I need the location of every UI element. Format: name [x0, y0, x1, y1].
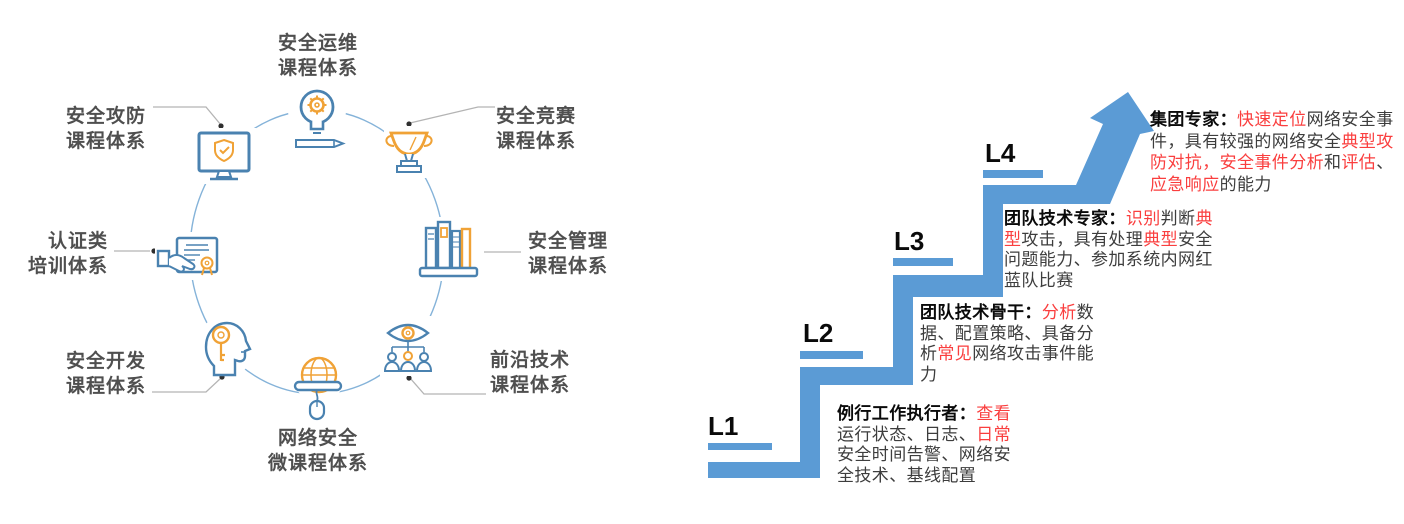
node-label-competition: 安全竞赛 课程体系 — [496, 104, 616, 154]
desc-line: 蓝队比赛 — [1004, 271, 1229, 292]
desc-line: 应急响应的能力 — [1150, 174, 1404, 196]
globe-mouse-icon — [293, 350, 345, 422]
desc-line: 问题能力、参加系统内网红 — [1004, 250, 1229, 271]
node-label-micro: 网络安全 微课程体系 — [238, 426, 398, 476]
text-segment: 识别 — [1126, 209, 1161, 228]
text-segment: 力 — [920, 365, 937, 384]
text-segment: 蓝队比赛 — [1004, 271, 1074, 290]
text-segment: 安全时间告警、网络安 — [837, 445, 1011, 464]
node-label-line: 微课程体系 — [238, 451, 398, 476]
desc-line: 析常见网络攻击事件能 — [920, 344, 1110, 365]
level-label-l4: L4 — [985, 139, 1015, 167]
connector-development — [152, 378, 221, 392]
text-segment: 网络安全事 — [1307, 110, 1394, 129]
connector-frontier — [410, 378, 486, 394]
level-desc-l4: 集团专家：快速定位网络安全事 件，具有较强的网络安全典型攻 防对抗，安全事件分析… — [1150, 109, 1404, 195]
text-segment: 分析 — [1042, 303, 1077, 322]
desc-line: 型攻击，具有处理典型安全 — [1004, 230, 1229, 251]
text-segment: 和 — [1324, 153, 1341, 172]
text-segment: 析 — [920, 344, 937, 363]
desc-line: 防对抗，安全事件分析和评估、 — [1150, 152, 1404, 174]
node-label-development: 安全开发 课程体系 — [26, 349, 146, 399]
node-label-line: 认证类 — [0, 229, 108, 254]
text-segment: 例行工作执行者： — [837, 404, 976, 423]
text-segment: 全技术、基线配置 — [837, 466, 976, 485]
text-segment: 数 — [1077, 303, 1094, 322]
level-bar-l4 — [983, 170, 1043, 178]
level-desc-l1: 例行工作执行者：查看 运行状态、日志、日常 安全时间告警、网络安 全技术、基线配… — [837, 404, 1027, 487]
text-segment: 查看 — [976, 404, 1011, 423]
desc-line: 力 — [920, 365, 1110, 386]
text-segment: 攻击，具有处理 — [1021, 230, 1143, 249]
text-segment: 判断 — [1161, 209, 1196, 228]
figure-canvas: 安全运维 课程体系 安全攻防 课程体系 安全竞赛 课程体系 认证类 培训体系 安… — [0, 0, 1404, 524]
level-label-l1: L1 — [708, 412, 738, 440]
node-label-line: 安全管理 — [528, 229, 648, 254]
text-segment: 日常 — [976, 425, 1011, 444]
text-segment: 团队技术骨干： — [920, 303, 1042, 322]
certificate-icon — [155, 232, 223, 280]
text-segment: 快速定位 — [1237, 110, 1307, 129]
level-desc-l2: 团队技术骨干：分析数 据、配置策略、具备分 析常见网络攻击事件能 力 — [920, 303, 1110, 386]
node-label-line: 安全运维 — [238, 31, 398, 56]
text-segment: 件，具有较强的网络安全 — [1150, 132, 1341, 151]
level-bar-l3 — [893, 258, 953, 266]
node-label-management: 安全管理 课程体系 — [528, 229, 648, 279]
node-label-line: 安全竞赛 — [496, 104, 616, 129]
text-segment: 防对抗，安全事件分析 — [1150, 153, 1324, 172]
node-label-line: 课程体系 — [26, 129, 146, 154]
desc-line: 件，具有较强的网络安全典型攻 — [1150, 131, 1404, 153]
text-segment: 评估 — [1341, 153, 1376, 172]
node-label-certification: 认证类 培训体系 — [0, 229, 108, 279]
text-segment: 、 — [1376, 153, 1393, 172]
level-label-l3: L3 — [894, 227, 924, 255]
text-segment: 网络攻击事件能 — [972, 344, 1094, 363]
node-label-line: 课程体系 — [26, 374, 146, 399]
node-label-line: 安全开发 — [26, 349, 146, 374]
desc-line: 团队技术骨干：分析数 — [920, 303, 1110, 324]
node-label-line: 安全攻防 — [26, 104, 146, 129]
level-desc-l3: 团队技术专家：识别判断典 型攻击，具有处理典型安全 问题能力、参加系统内网红 蓝… — [1004, 209, 1229, 292]
node-label-attack-defense: 安全攻防 课程体系 — [26, 104, 146, 154]
node-label-frontier: 前沿技术 课程体系 — [490, 348, 610, 398]
level-bar-l2 — [800, 351, 863, 359]
text-segment: 运行状态、日志、 — [837, 425, 976, 444]
monitor-shield-icon — [194, 128, 256, 184]
node-label-line: 前沿技术 — [490, 348, 610, 373]
node-label-line: 网络安全 — [238, 426, 398, 451]
desc-line: 全技术、基线配置 — [837, 466, 1027, 487]
text-segment: 应急响应 — [1150, 175, 1220, 194]
head-key-icon — [196, 316, 256, 376]
connector-competition — [410, 107, 495, 123]
text-segment: 团队技术专家： — [1004, 209, 1126, 228]
trophy-icon — [384, 126, 436, 178]
text-segment: 常见 — [937, 344, 972, 363]
node-label-line: 课程体系 — [528, 254, 648, 279]
level-bar-l1 — [708, 443, 772, 450]
connector-attack-defense — [153, 107, 221, 125]
books-icon — [414, 217, 482, 281]
level-label-l2: L2 — [803, 319, 833, 347]
node-label-line: 培训体系 — [0, 254, 108, 279]
desc-line: 团队技术专家：识别判断典 — [1004, 209, 1229, 230]
desc-line: 安全时间告警、网络安 — [837, 445, 1027, 466]
text-segment: 典型攻 — [1341, 132, 1393, 151]
node-label-line: 课程体系 — [490, 373, 610, 398]
desc-line: 集团专家：快速定位网络安全事 — [1150, 109, 1404, 131]
text-segment: 典 — [1195, 209, 1212, 228]
text-segment: 典型 — [1143, 230, 1178, 249]
desc-line: 运行状态、日志、日常 — [837, 425, 1027, 446]
node-label-line: 课程体系 — [496, 129, 616, 154]
text-segment: 安全 — [1178, 230, 1213, 249]
desc-line: 例行工作执行者：查看 — [837, 404, 1027, 425]
desc-line: 据、配置策略、具备分 — [920, 324, 1110, 345]
lightbulb-gear-icon — [288, 81, 350, 150]
eye-people-icon — [380, 316, 438, 376]
text-segment: 问题能力、参加系统内网红 — [1004, 250, 1213, 269]
text-segment: 的能力 — [1220, 175, 1272, 194]
node-label-line: 课程体系 — [238, 56, 398, 81]
text-segment: 型 — [1004, 230, 1021, 249]
node-label-ops: 安全运维 课程体系 — [238, 31, 398, 81]
text-segment: 集团专家： — [1150, 110, 1237, 129]
text-segment: 据、配置策略、具备分 — [920, 324, 1094, 343]
